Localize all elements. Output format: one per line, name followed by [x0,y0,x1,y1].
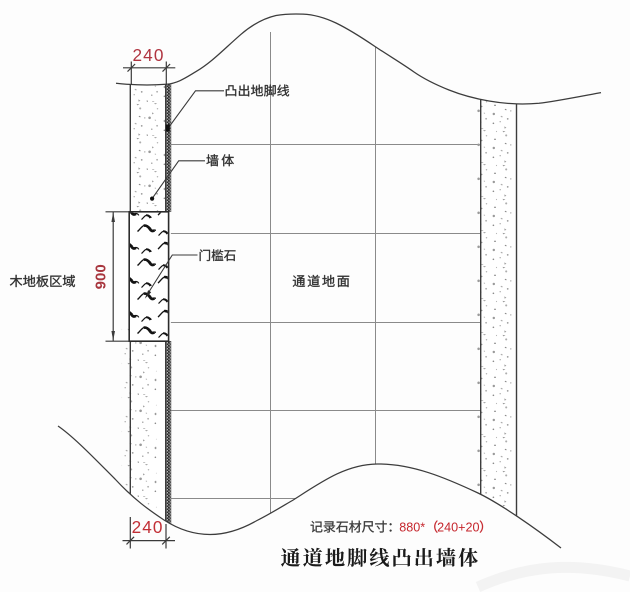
svg-text:240: 240 [132,517,164,537]
svg-text:880*: 880* [399,521,425,535]
svg-text:900: 900 [92,264,109,289]
svg-text:240: 240 [133,45,165,65]
svg-text:240+20: 240+20 [437,521,479,535]
